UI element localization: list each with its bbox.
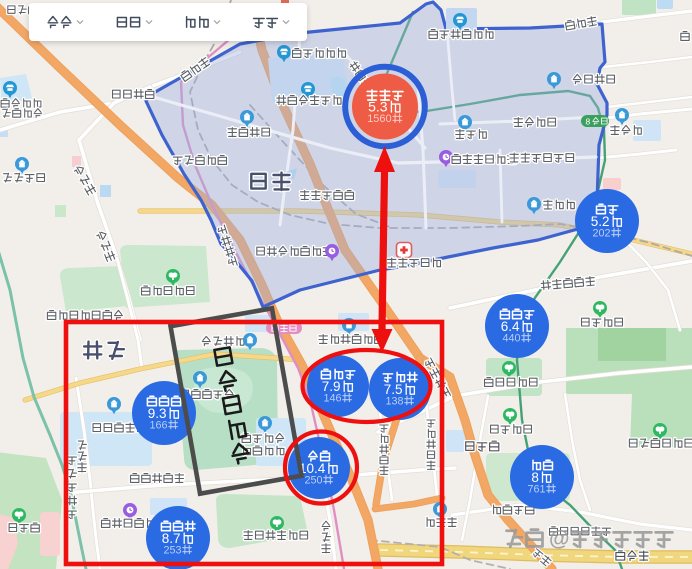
svg-text:8: 8 [586,117,591,127]
svg-text:202: 202 [593,227,611,239]
svg-text:138: 138 [386,395,404,407]
svg-text:166: 166 [150,419,168,431]
svg-text:761: 761 [528,483,546,495]
svg-text:146: 146 [324,392,342,404]
svg-text:253: 253 [164,544,182,556]
svg-text:250: 250 [305,474,323,486]
svg-text:1560: 1560 [367,113,391,125]
svg-text:440: 440 [503,332,521,344]
svg-text:@: @ [549,528,569,551]
